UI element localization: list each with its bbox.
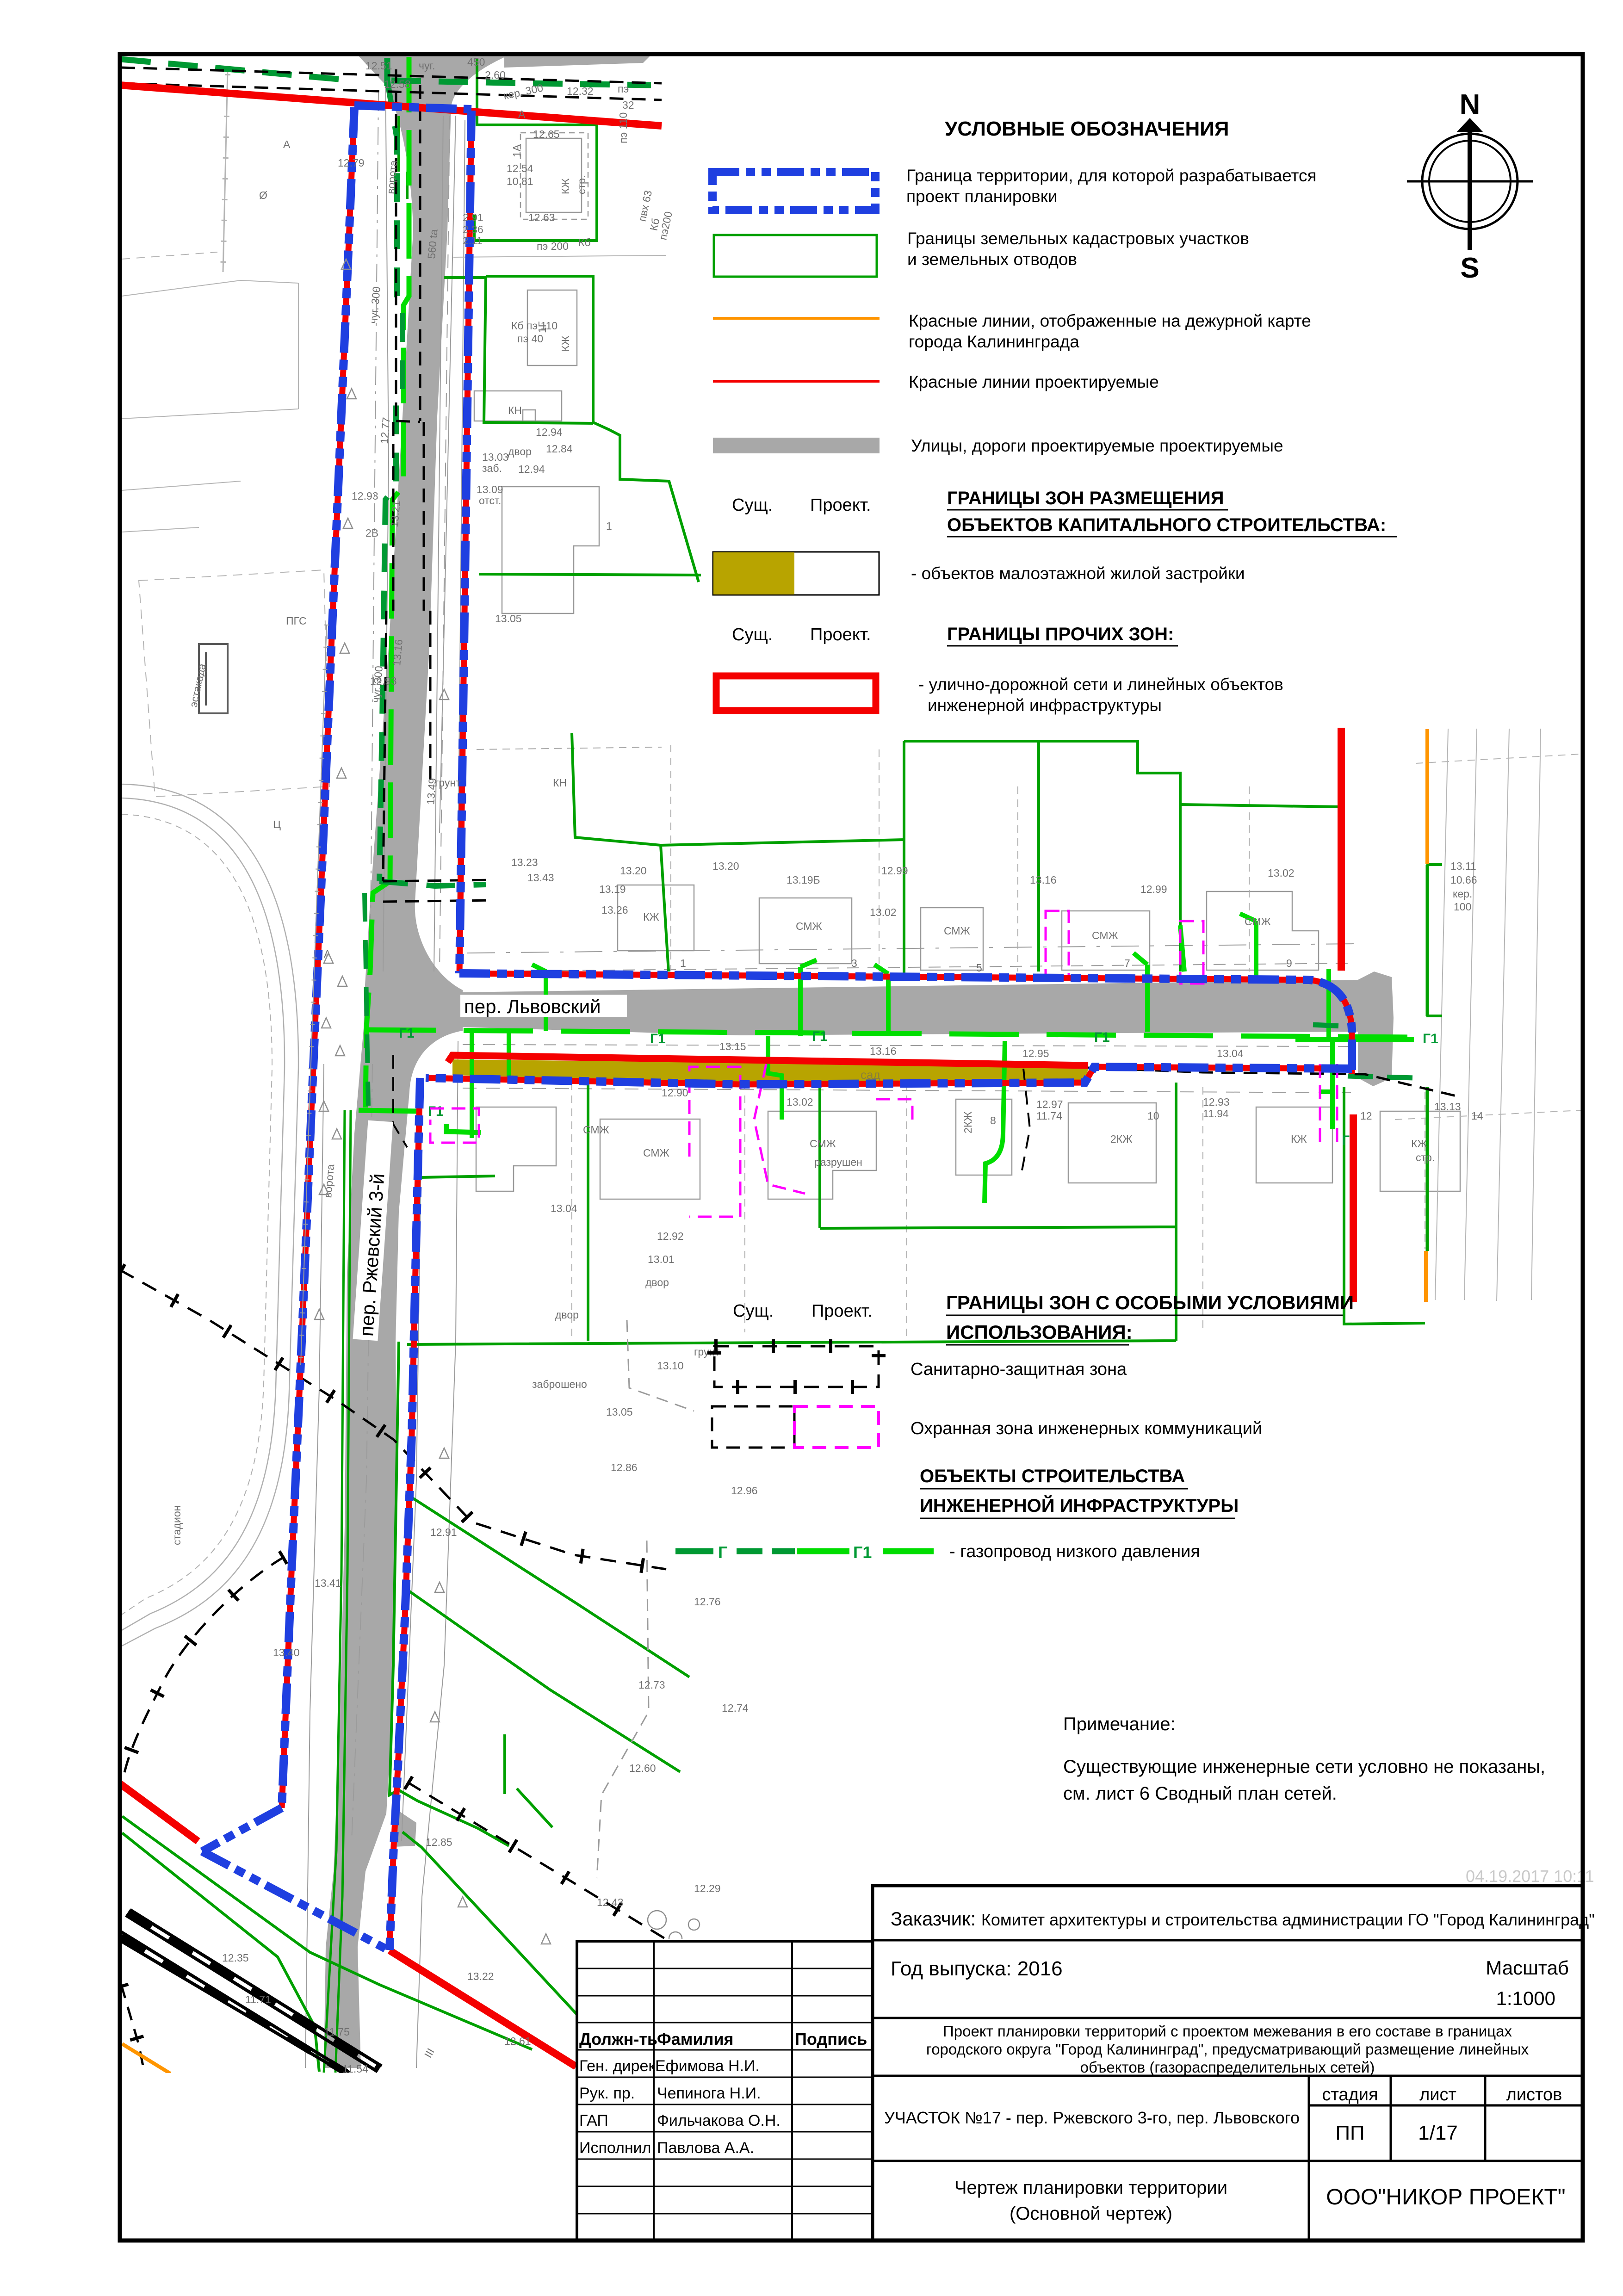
svg-text:12.54: 12.54 (507, 162, 533, 174)
svg-text:32: 32 (622, 99, 634, 111)
svg-text:ИНЖЕНЕРНОЙ ИНФРАСТРУКТУРЫ: ИНЖЕНЕРНОЙ ИНФРАСТРУКТУРЫ (920, 1495, 1239, 1516)
svg-text:12.35: 12.35 (222, 1952, 249, 1964)
svg-text:Проект.: Проект. (811, 1301, 873, 1321)
svg-text:12.65: 12.65 (533, 128, 560, 140)
svg-text:560 ta: 560 ta (425, 229, 440, 259)
svg-text:Г1: Г1 (853, 1543, 872, 1562)
svg-text:12.95: 12.95 (1022, 1047, 1049, 1059)
svg-text:13.20: 13.20 (712, 860, 739, 872)
svg-text:городского округа "Город Калин: городского округа "Город Калининград", п… (926, 2041, 1529, 2058)
svg-text:пэ: пэ (618, 83, 629, 95)
svg-text:КЖ: КЖ (643, 911, 659, 923)
svg-text:Г1: Г1 (650, 1031, 666, 1046)
svg-text:13.49: 13.49 (424, 778, 439, 805)
svg-text:Масштаб: Масштаб (1486, 1957, 1569, 1979)
svg-text:Граница территории, для которо: Граница территории, для которой разрабат… (906, 166, 1317, 185)
svg-text:8: 8 (990, 1114, 996, 1126)
svg-text:13.05: 13.05 (495, 613, 522, 625)
svg-text:Г: Г (718, 1543, 727, 1562)
svg-text:12.58: 12.58 (384, 78, 411, 90)
svg-text:ОБЪЕКТЫ СТРОИТЕЛЬСТВА: ОБЪЕКТЫ СТРОИТЕЛЬСТВА (920, 1466, 1185, 1486)
svg-text:Фамилия: Фамилия (657, 2030, 734, 2048)
svg-text:УСЛОВНЫЕ ОБОЗНАЧЕНИЯ: УСЛОВНЫЕ ОБОЗНАЧЕНИЯ (945, 118, 1229, 140)
svg-text:лист: лист (1419, 2085, 1456, 2104)
svg-text:13.04: 13.04 (551, 1202, 577, 1214)
svg-text:Сущ.: Сущ. (732, 495, 773, 515)
svg-text:проект планировки: проект планировки (906, 187, 1058, 206)
svg-text:двор: двор (645, 1276, 669, 1288)
svg-text:двор: двор (555, 1309, 579, 1321)
svg-text:Г1: Г1 (399, 1026, 415, 1041)
svg-text:стр.: стр. (1416, 1151, 1435, 1163)
svg-text:12: 12 (1360, 1110, 1372, 1122)
svg-text:13.16: 13.16 (1030, 874, 1057, 886)
svg-text:Границы земельных кадастровых: Границы земельных кадастровых участков (907, 229, 1249, 248)
svg-text:и земельных отводов: и земельных отводов (907, 250, 1077, 269)
svg-text:Проект.: Проект. (810, 495, 871, 515)
svg-text:2.11: 2.11 (463, 235, 483, 247)
svg-text:7: 7 (1124, 957, 1130, 969)
svg-text:КЖ: КЖ (1291, 1133, 1307, 1145)
svg-text:1: 1 (606, 520, 612, 532)
svg-text:Фильчакова О.Н.: Фильчакова О.Н. (657, 2112, 781, 2129)
svg-text:13.10: 13.10 (657, 1360, 684, 1372)
svg-text:Санитарно-защитная зона: Санитарно-защитная зона (911, 1360, 1127, 1379)
svg-text:Красные линии проектируемые: Красные линии проектируемые (909, 372, 1159, 391)
svg-text:11.94: 11.94 (1203, 1108, 1229, 1120)
svg-text:Должн-ть: Должн-ть (579, 2030, 657, 2048)
svg-text:см. лист 6 Сводный план сетей.: см. лист 6 Сводный план сетей. (1063, 1783, 1337, 1804)
svg-text:13.11: 13.11 (1450, 860, 1476, 872)
svg-text:9: 9 (1286, 957, 1292, 969)
svg-text:Ефимова Н.И.: Ефимова Н.И. (655, 2057, 760, 2075)
svg-text:А: А (283, 138, 291, 150)
svg-text:Г1: Г1 (1423, 1031, 1438, 1046)
svg-text:1Г: 1Г (536, 321, 548, 333)
svg-text:10: 10 (1147, 1110, 1159, 1122)
svg-text:13.05: 13.05 (606, 1406, 633, 1418)
svg-text:Охранная зона инженерных комму: Охранная зона инженерных коммуникаций (911, 1419, 1262, 1438)
svg-text:пэ 200: пэ 200 (537, 240, 569, 252)
svg-text:Год выпуска: 2016: Год выпуска: 2016 (891, 1957, 1063, 1980)
svg-text:11.75: 11.75 (324, 2026, 350, 2038)
svg-text:Красные линии, отображенные на: Красные линии, отображенные на дежурной … (909, 311, 1311, 330)
svg-text:04.19.2017 10:11: 04.19.2017 10:11 (1466, 1867, 1594, 1886)
svg-text:12.91: 12.91 (430, 1526, 457, 1538)
svg-text:- улично-дорожной сети и линей: - улично-дорожной сети и линейных объект… (918, 675, 1283, 694)
svg-text:13.03: 13.03 (482, 451, 509, 463)
svg-text:КЖ: КЖ (559, 178, 571, 194)
svg-text:3: 3 (851, 957, 857, 969)
svg-text:Ген. дирек.: Ген. дирек. (579, 2057, 660, 2075)
svg-text:13.16: 13.16 (870, 1045, 897, 1057)
svg-text:12.96: 12.96 (731, 1485, 758, 1497)
svg-text:Г1: Г1 (1094, 1030, 1110, 1045)
svg-text:13.04: 13.04 (1217, 1047, 1244, 1059)
svg-text:12.99: 12.99 (1140, 883, 1167, 895)
svg-text:13.22: 13.22 (467, 1970, 494, 1982)
svg-text:5: 5 (976, 962, 982, 974)
svg-text:10.81: 10.81 (507, 175, 533, 187)
svg-text:КЖ: КЖ (559, 335, 571, 352)
svg-text:Ц: Ц (273, 818, 281, 830)
svg-text:12.43: 12.43 (597, 1896, 624, 1908)
svg-text:12.74: 12.74 (722, 1702, 749, 1714)
svg-text:2КЖ: 2КЖ (1110, 1133, 1132, 1145)
svg-text:13.19Б: 13.19Б (787, 874, 820, 886)
svg-text:Г1: Г1 (428, 1104, 444, 1119)
svg-text:12.90: 12.90 (662, 1087, 688, 1099)
svg-text:СМЖ: СМЖ (944, 925, 970, 937)
svg-text:СМЖ: СМЖ (583, 1124, 609, 1136)
svg-text:СМЖ: СМЖ (1092, 929, 1118, 941)
svg-text:2КЖ: 2КЖ (962, 1112, 974, 1133)
svg-text:13.43: 13.43 (527, 872, 554, 884)
svg-text:(Основной чертеж): (Основной чертеж) (1010, 2203, 1172, 2224)
svg-text:СМЖ: СМЖ (643, 1147, 669, 1159)
svg-text:11.71: 11.71 (245, 1993, 271, 2005)
svg-text:пэ 110: пэ 110 (617, 112, 629, 143)
svg-text:13.02: 13.02 (870, 906, 897, 918)
svg-text:12.99: 12.99 (881, 865, 908, 877)
svg-text:Существующие инженерные сети у: Существующие инженерные сети условно не … (1063, 1757, 1545, 1777)
svg-text:Ø: Ø (259, 189, 267, 201)
svg-text:Исполнил: Исполнил (579, 2139, 651, 2157)
svg-text:стадия: стадия (1322, 2085, 1378, 2104)
svg-text:ИСПОЛЬЗОВАНИЯ:: ИСПОЛЬЗОВАНИЯ: (946, 1321, 1133, 1343)
svg-text:12.73: 12.73 (638, 1679, 665, 1691)
svg-text:- объектов малоэтажной жилой з: - объектов малоэтажной жилой застройки (911, 564, 1245, 583)
svg-text:12.97: 12.97 (1036, 1098, 1063, 1110)
svg-text:пер. Львовский: пер. Львовский (464, 996, 601, 1017)
svg-text:инженерной инфраструктуры: инженерной инфраструктуры (928, 696, 1162, 715)
svg-text:13.26: 13.26 (601, 904, 628, 916)
svg-text:листов: листов (1506, 2085, 1562, 2104)
svg-text:100: 100 (1454, 901, 1471, 913)
svg-text:2В: 2В (365, 527, 378, 539)
svg-text:13.40: 13.40 (273, 1646, 300, 1659)
svg-text:S: S (1460, 252, 1479, 284)
svg-text:Павлова А.А.: Павлова А.А. (657, 2139, 754, 2157)
svg-text:ГРАНИЦЫ ПРОЧИХ ЗОН:: ГРАНИЦЫ ПРОЧИХ ЗОН: (947, 624, 1174, 644)
svg-text:13.09: 13.09 (477, 483, 503, 495)
svg-text:12.93: 12.93 (352, 490, 378, 502)
svg-text:12.92: 12.92 (657, 1230, 684, 1242)
svg-text:12.94: 12.94 (518, 463, 545, 475)
svg-text:отст.: отст. (479, 495, 501, 507)
svg-text:ГРАНИЦЫ ЗОН РАЗМЕЩЕНИЯ: ГРАНИЦЫ ЗОН РАЗМЕЩЕНИЯ (947, 488, 1224, 508)
svg-text:12.51: 12.51 (365, 60, 392, 72)
svg-text:стр.: стр. (576, 175, 588, 194)
svg-text:разрушен: разрушен (814, 1156, 862, 1168)
svg-text:А: А (518, 108, 526, 120)
svg-text:УЧАСТОК №17 - пер. Ржевского 3: УЧАСТОК №17 - пер. Ржевского 3-го, пер. … (884, 2108, 1300, 2127)
svg-text:12.60: 12.60 (629, 1762, 656, 1774)
svg-text:Чертеж планировки территории: Чертеж планировки территории (954, 2178, 1227, 2198)
svg-text:1А: 1А (511, 144, 523, 157)
svg-text:Чепинога Н.И.: Чепинога Н.И. (657, 2085, 761, 2102)
svg-text:12.63: 12.63 (528, 211, 555, 223)
svg-text:КЖ: КЖ (1411, 1138, 1427, 1150)
svg-text:кер.: кер. (1453, 888, 1472, 900)
svg-text:заб.: заб. (482, 462, 502, 474)
svg-text:12.29: 12.29 (694, 1882, 721, 1894)
svg-text:12.94: 12.94 (536, 426, 563, 438)
svg-text:СМЖ: СМЖ (796, 920, 822, 932)
svg-text:Сущ.: Сущ. (732, 625, 773, 644)
svg-text:13.41: 13.41 (315, 1577, 341, 1589)
svg-text:13.21: 13.21 (388, 500, 403, 528)
svg-text:10.66: 10.66 (1450, 874, 1477, 886)
svg-text:13.20: 13.20 (620, 865, 647, 877)
svg-text:Г1: Г1 (812, 1029, 828, 1044)
svg-text:11.74: 11.74 (1036, 1110, 1062, 1122)
svg-text:ПП: ПП (1335, 2122, 1364, 2144)
svg-text:1: 1 (680, 957, 686, 969)
svg-text:- газопровод низкого давления: - газопровод низкого давления (949, 1542, 1200, 1561)
svg-text:13.23: 13.23 (511, 856, 538, 868)
svg-text:объектов (газораспределительны: объектов (газораспределительных сетей) (1080, 2059, 1375, 2076)
svg-text:12.61: 12.61 (504, 2035, 531, 2047)
svg-text:ПГС: ПГС (286, 615, 307, 627)
svg-text:Подпись: Подпись (795, 2030, 867, 2048)
svg-text:13.15: 13.15 (719, 1040, 746, 1052)
svg-text:Кб пэ 110: Кб пэ 110 (511, 320, 558, 332)
svg-text:стадион: стадион (171, 1505, 183, 1545)
svg-text:грунт: грунт (435, 777, 461, 789)
svg-text:12.77: 12.77 (378, 417, 392, 445)
svg-text:Сущ.: Сущ. (733, 1301, 774, 1321)
svg-text:ГРАНИЦЫ ЗОН С ОСОБЫМИ УСЛОВИЯМ: ГРАНИЦЫ ЗОН С ОСОБЫМИ УСЛОВИЯМИ (946, 1292, 1354, 1313)
svg-text:13.13: 13.13 (1434, 1101, 1461, 1113)
svg-text:12.76: 12.76 (694, 1596, 721, 1608)
svg-text:13.02: 13.02 (787, 1096, 813, 1108)
svg-text:Проект.: Проект. (810, 625, 871, 644)
svg-text:ГАП: ГАП (579, 2112, 608, 2129)
svg-text:чуг.: чуг. (419, 60, 435, 72)
svg-text:12.32: 12.32 (567, 85, 594, 97)
svg-text:1/17: 1/17 (1418, 2122, 1458, 2144)
svg-text:Рук. пр.: Рук. пр. (579, 2085, 635, 2102)
svg-text:12.85: 12.85 (426, 1836, 452, 1848)
svg-text:ООО"НИКОР ПРОЕКТ": ООО"НИКОР ПРОЕКТ" (1326, 2185, 1565, 2209)
svg-text:Проект планировки территорий с: Проект планировки территорий с проектом … (943, 2023, 1512, 2040)
svg-text:12.79: 12.79 (338, 157, 365, 169)
svg-text:12.84: 12.84 (546, 443, 573, 455)
svg-text:КН: КН (508, 404, 522, 416)
svg-text:города Калининграда: города Калининграда (909, 332, 1079, 351)
svg-text:1:1000: 1:1000 (1496, 1987, 1555, 2009)
svg-text:двор: двор (508, 446, 532, 458)
svg-text:Заказчик: Комитет архитектуры: Заказчик: Комитет архитектуры и строител… (891, 1908, 1595, 1930)
svg-text:заброшено: заброшено (532, 1378, 587, 1390)
svg-text:Кб: Кб (578, 236, 591, 248)
svg-text:13.19: 13.19 (599, 883, 626, 895)
svg-text:ОБЪЕКТОВ КАПИТАЛЬНОГО СТРОИТЕЛ: ОБЪЕКТОВ КАПИТАЛЬНОГО СТРОИТЕЛЬСТВА: (947, 515, 1386, 535)
svg-text:2.36: 2.36 (463, 223, 483, 235)
svg-text:N: N (1460, 89, 1481, 121)
svg-text:450: 450 (467, 56, 485, 68)
svg-text:12.93: 12.93 (1203, 1096, 1230, 1108)
svg-text:КН: КН (553, 777, 567, 789)
svg-text:пэ 40: пэ 40 (517, 333, 543, 345)
svg-text:Улицы, дороги проектируемые пр: Улицы, дороги проектируемые проектируемы… (911, 436, 1283, 455)
svg-text:СМЖ: СМЖ (810, 1138, 836, 1150)
svg-text:14: 14 (1471, 1110, 1483, 1122)
svg-text:Примечание:: Примечание: (1063, 1714, 1176, 1734)
svg-text:13.01: 13.01 (648, 1253, 675, 1265)
svg-text:13.16: 13.16 (390, 639, 405, 667)
svg-text:2.60: 2.60 (485, 69, 506, 81)
svg-text:12.86: 12.86 (611, 1461, 638, 1473)
svg-text:13.02: 13.02 (1268, 867, 1295, 879)
svg-text:СМЖ: СМЖ (1245, 916, 1271, 928)
svg-text:2.91: 2.91 (463, 211, 483, 223)
